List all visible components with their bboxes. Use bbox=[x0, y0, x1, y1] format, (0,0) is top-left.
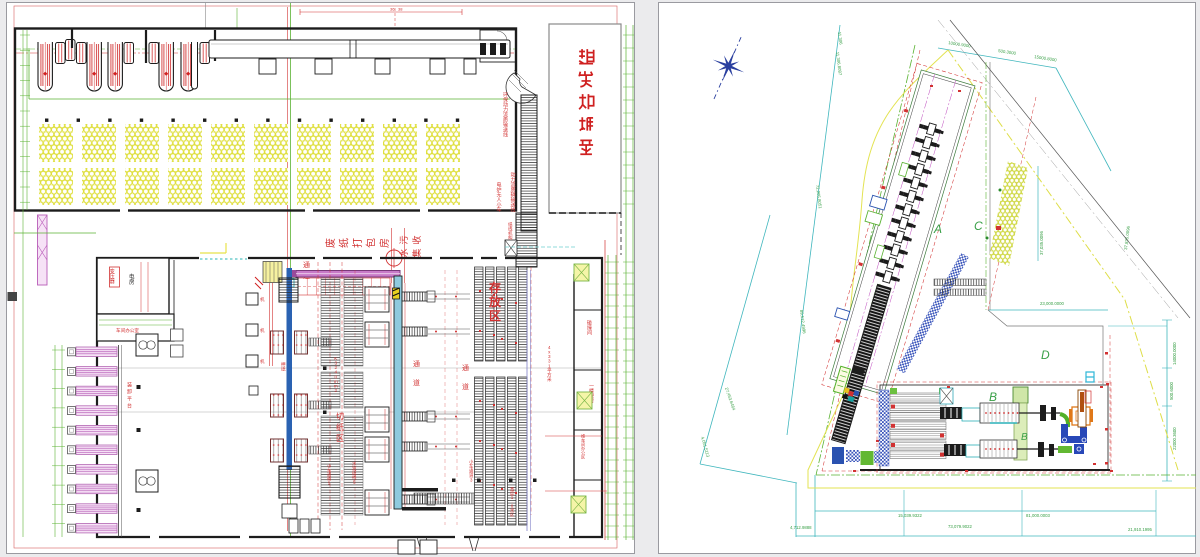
svg-text:21,910.1995: 21,910.1995 bbox=[1128, 527, 1153, 532]
svg-text:装: 装 bbox=[127, 381, 132, 388]
svg-text:区: 区 bbox=[336, 434, 344, 443]
svg-text:通: 通 bbox=[303, 260, 310, 269]
svg-text:区: 区 bbox=[510, 512, 514, 517]
svg-text:台: 台 bbox=[127, 402, 132, 409]
svg-text:车: 车 bbox=[496, 206, 501, 213]
svg-text:污: 污 bbox=[398, 235, 409, 244]
svg-text:2: 2 bbox=[335, 388, 338, 393]
svg-text:4,712.9888: 4,712.9888 bbox=[790, 525, 812, 530]
svg-text:机: 机 bbox=[260, 296, 265, 303]
svg-text:15,039.9322: 15,039.9322 bbox=[898, 513, 923, 518]
svg-text:线: 线 bbox=[503, 131, 508, 138]
svg-text:机: 机 bbox=[260, 327, 265, 334]
svg-text:纸: 纸 bbox=[336, 422, 344, 432]
svg-text:500.6000: 500.6000 bbox=[1169, 381, 1174, 400]
svg-text:存: 存 bbox=[488, 280, 501, 295]
svg-text:B: B bbox=[1021, 432, 1028, 443]
svg-text:B: B bbox=[989, 390, 997, 404]
svg-text:区: 区 bbox=[489, 309, 501, 323]
svg-text:包: 包 bbox=[365, 238, 378, 248]
svg-text:14000.0000: 14000.0000 bbox=[1172, 342, 1177, 365]
svg-text:纸: 纸 bbox=[281, 365, 286, 372]
svg-text:间: 间 bbox=[587, 329, 592, 336]
svg-text:A: A bbox=[933, 222, 942, 236]
svg-text:平: 平 bbox=[127, 396, 132, 402]
svg-text:通: 通 bbox=[462, 363, 469, 372]
svg-text:卸: 卸 bbox=[127, 388, 132, 395]
svg-text:D: D bbox=[1041, 348, 1050, 362]
svg-text:放: 放 bbox=[488, 294, 502, 309]
svg-text:道: 道 bbox=[413, 378, 420, 387]
svg-text:米: 米 bbox=[547, 376, 552, 383]
svg-text:房: 房 bbox=[129, 278, 135, 286]
svg-text:22000.3600: 22000.3600 bbox=[1172, 427, 1177, 450]
svg-text:构: 构 bbox=[508, 234, 513, 241]
svg-text:区: 区 bbox=[581, 455, 585, 460]
svg-text:73,079.9022: 73,079.9022 bbox=[948, 524, 973, 529]
svg-text:收: 收 bbox=[411, 235, 422, 244]
svg-text:通: 通 bbox=[413, 359, 420, 368]
svg-text:机: 机 bbox=[260, 358, 265, 365]
svg-text:道: 道 bbox=[462, 382, 469, 391]
svg-text:38: 38 bbox=[398, 7, 403, 12]
svg-text:36: 36 bbox=[390, 7, 395, 12]
svg-text:线: 线 bbox=[510, 206, 515, 213]
svg-text:切: 切 bbox=[336, 412, 344, 421]
svg-text:器: 器 bbox=[110, 279, 115, 285]
svg-text:81,000.0003: 81,000.0003 bbox=[1026, 513, 1051, 518]
svg-text:打: 打 bbox=[351, 238, 364, 248]
svg-text:23,000.0000: 23,000.0000 bbox=[1040, 301, 1065, 306]
svg-text:水: 水 bbox=[398, 248, 409, 257]
svg-text:C: C bbox=[974, 219, 983, 233]
svg-text:车间办公室: 车间办公室 bbox=[116, 327, 139, 334]
svg-text:纸: 纸 bbox=[338, 238, 351, 248]
svg-text:集: 集 bbox=[411, 248, 422, 257]
svg-text:房: 房 bbox=[378, 238, 391, 248]
svg-text:37,035.0096: 37,035.0096 bbox=[1039, 230, 1044, 255]
svg-text:废: 废 bbox=[324, 238, 337, 248]
